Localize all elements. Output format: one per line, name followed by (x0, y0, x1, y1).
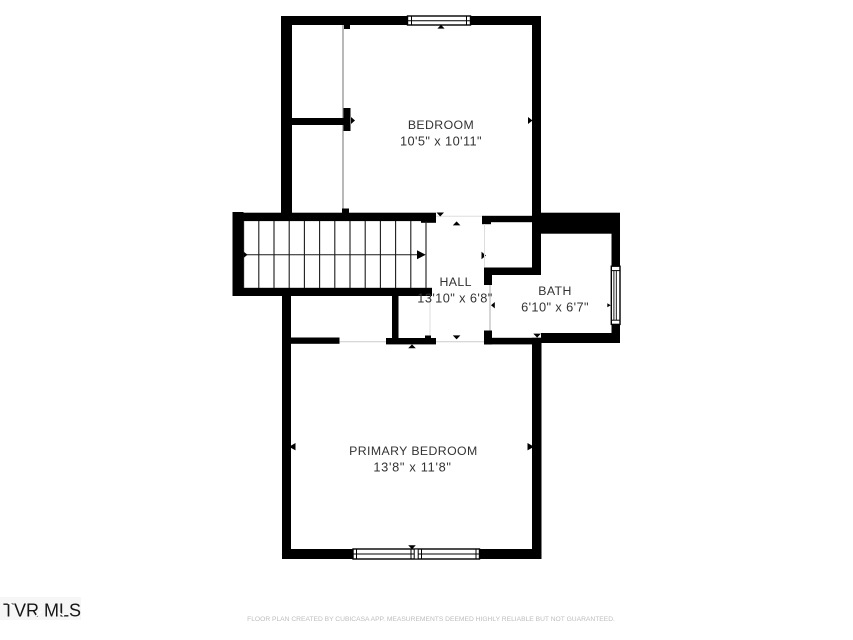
svg-text:13'10" x 6'8": 13'10" x 6'8" (417, 291, 492, 306)
svg-text:10'5" x 10'11": 10'5" x 10'11" (400, 134, 482, 149)
svg-text:BEDROOM: BEDROOM (408, 118, 474, 132)
svg-text:HALL: HALL (440, 275, 472, 289)
svg-text:PRIMARY BEDROOM: PRIMARY BEDROOM (349, 444, 478, 458)
svg-text:FLOOR PLAN CREATED BY CUBICASA: FLOOR PLAN CREATED BY CUBICASA APP. MEAS… (247, 616, 615, 623)
svg-text:6'10" x 6'7": 6'10" x 6'7" (521, 300, 589, 315)
svg-text:BATH: BATH (538, 284, 571, 298)
svg-text:TVR MLS: TVR MLS (3, 601, 81, 621)
svg-text:13'8" x 11'8": 13'8" x 11'8" (373, 459, 451, 474)
